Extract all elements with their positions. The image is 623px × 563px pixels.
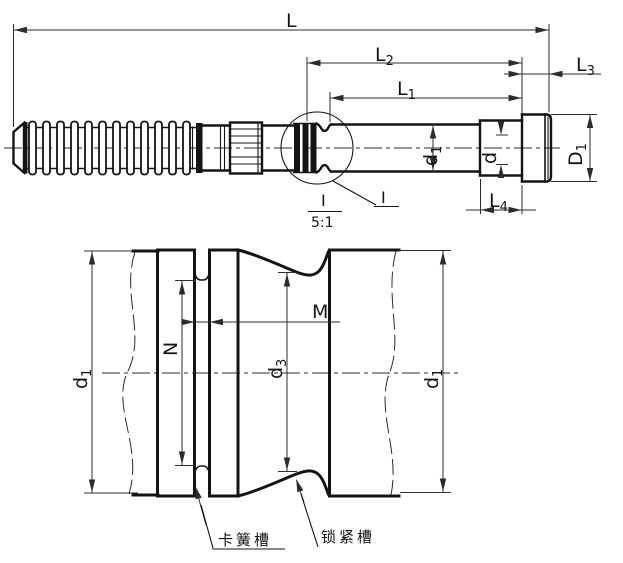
dim-N-label: N xyxy=(160,342,182,356)
dim-L2-label: L2 xyxy=(375,44,394,69)
engineering-drawing: I I 5:1 L L2 L3 xyxy=(0,0,623,563)
thread-crest xyxy=(113,122,120,175)
groove-collar-bar xyxy=(311,123,317,173)
dim-d3-label: d3 xyxy=(265,359,290,379)
detail-view: d1 N M d3 d1 xyxy=(70,250,458,549)
detail-callouts: 卡簧槽 锁紧槽 xyxy=(196,480,376,549)
groove-collar-bar xyxy=(294,123,300,173)
callout-leader xyxy=(201,505,213,548)
groove-neck-section xyxy=(293,123,331,173)
thread-crest xyxy=(57,122,64,175)
relief-neck-bottom xyxy=(317,165,332,172)
dim-M-label: M xyxy=(312,301,328,323)
dim-d1-left-label: d1 xyxy=(70,369,95,389)
dim-L3-label: L3 xyxy=(576,54,595,79)
thread-crest xyxy=(183,122,190,175)
dim-D1-label: D1 xyxy=(565,143,590,166)
neck-bottom-profile xyxy=(238,471,330,496)
thread-crest xyxy=(29,122,36,175)
tip-collar-bar xyxy=(23,122,28,174)
thread-crest xyxy=(43,122,50,175)
detail-title-marker: I xyxy=(321,191,326,210)
thread-crest xyxy=(141,122,148,175)
thread-crest xyxy=(127,122,134,175)
detail-marker-label: I xyxy=(381,188,386,207)
dim-L4-label: L4 xyxy=(489,190,508,215)
dim-L1-label: L1 xyxy=(397,78,416,103)
drawing-canvas: I I 5:1 L L2 L3 xyxy=(0,0,623,563)
thread-crest xyxy=(155,122,162,175)
step-collar-bar xyxy=(196,123,203,173)
top-view-dimensions: L L2 L3 L1 d1 xyxy=(14,10,602,215)
relief-neck-top xyxy=(317,124,332,131)
thread-crest xyxy=(99,122,106,175)
detail-leader-line xyxy=(333,181,376,205)
detail-title-scale: 5:1 xyxy=(311,215,334,231)
thread-crest xyxy=(71,122,78,175)
dim-L-label: L xyxy=(286,10,297,32)
dim-d1-label: d1 xyxy=(420,146,445,166)
top-view: I I 5:1 L L2 L3 xyxy=(4,10,601,231)
callout-locking-groove-label: 锁紧槽 xyxy=(321,528,375,546)
callout-leader xyxy=(301,494,318,547)
neck-top-profile xyxy=(238,250,330,275)
thread-crest xyxy=(169,122,176,175)
detail-title: I 5:1 xyxy=(308,191,342,231)
callout-circlip-groove-label: 卡簧槽 xyxy=(218,531,272,549)
dim-d1-right-label: d1 xyxy=(421,369,446,389)
thread-crest xyxy=(85,122,92,175)
groove-bottom-top xyxy=(195,271,210,280)
detail-dimensions: d1 N M d3 d1 xyxy=(70,251,451,494)
dim-d-label: d xyxy=(479,152,501,164)
groove-collar-bar xyxy=(303,123,309,173)
groove-bottom-bottom xyxy=(195,466,210,475)
